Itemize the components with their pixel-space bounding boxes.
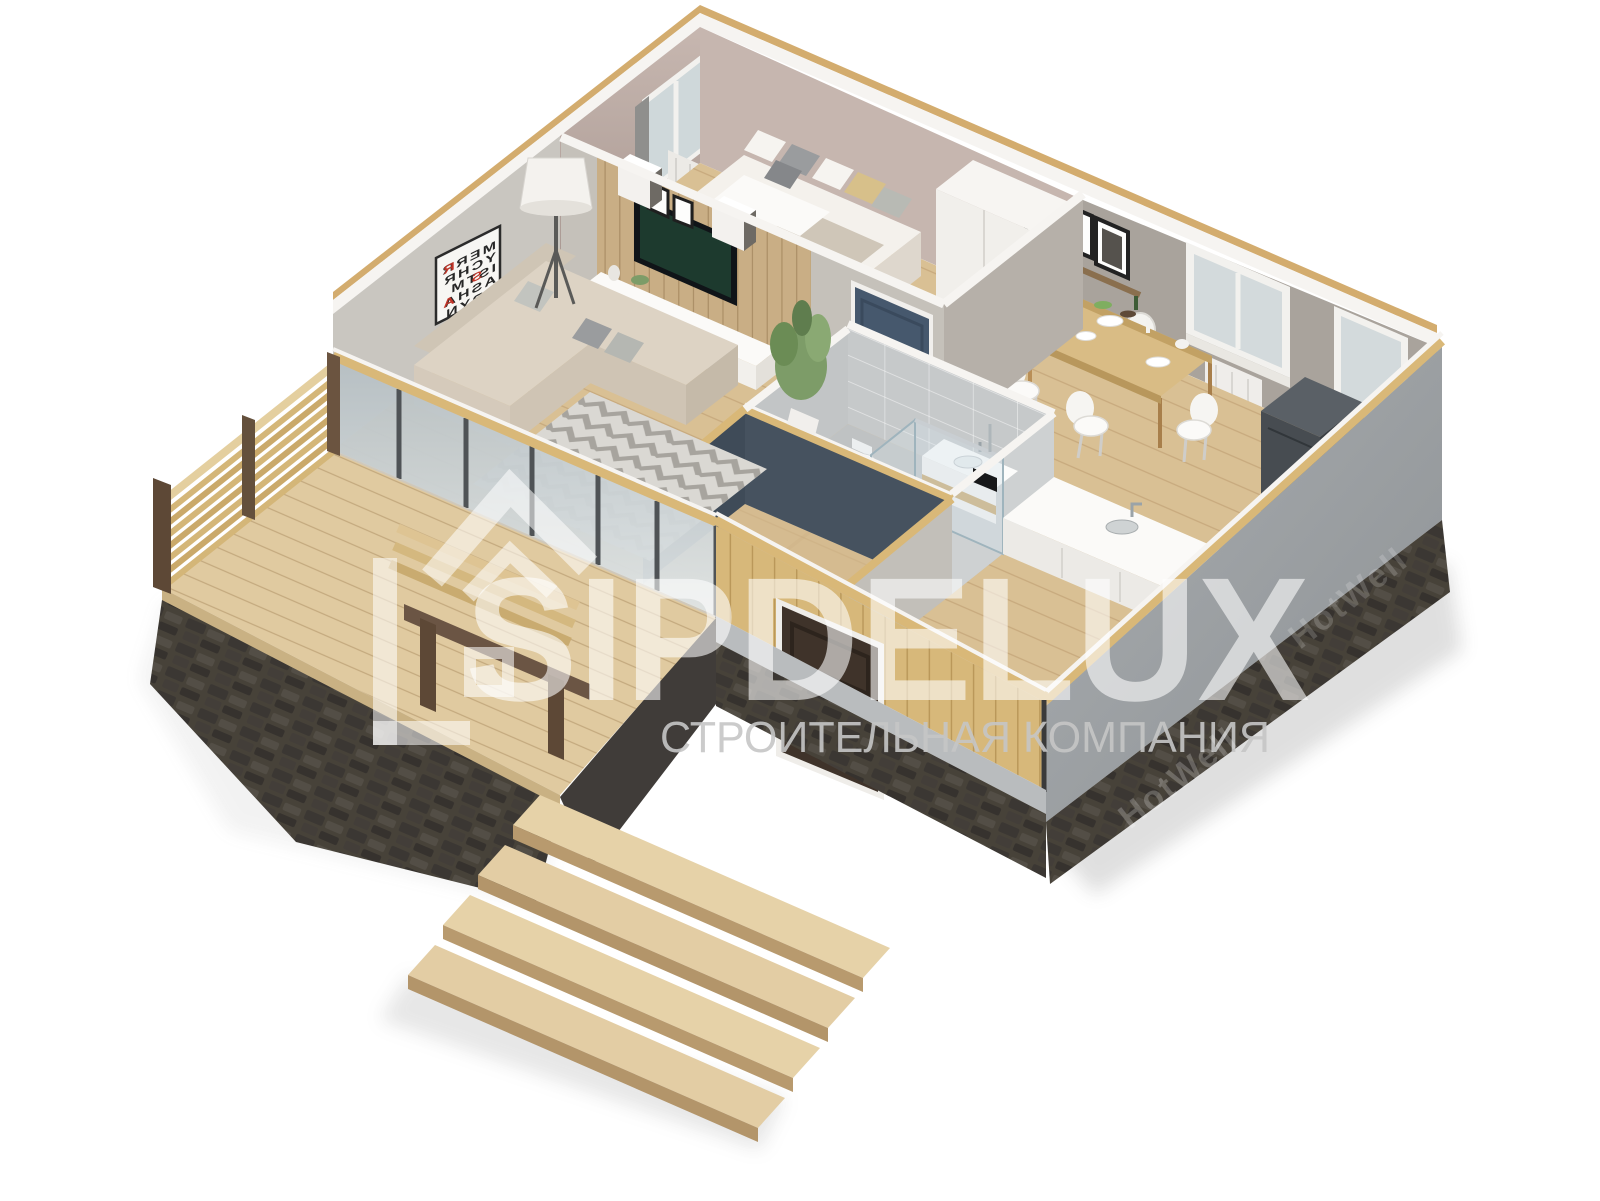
fence-post	[153, 478, 171, 594]
render-canvas: MERR YCHR ISTM ASHA PPYN YEAR R S A P	[0, 0, 1600, 1201]
brand-watermark: SIPDELUX	[465, 542, 1310, 738]
fence-post	[242, 415, 255, 520]
floorplan-3d-render: MERR YCHR ISTM ASHA PPYN YEAR R S A P	[0, 0, 1600, 1201]
fence-post	[327, 352, 340, 456]
